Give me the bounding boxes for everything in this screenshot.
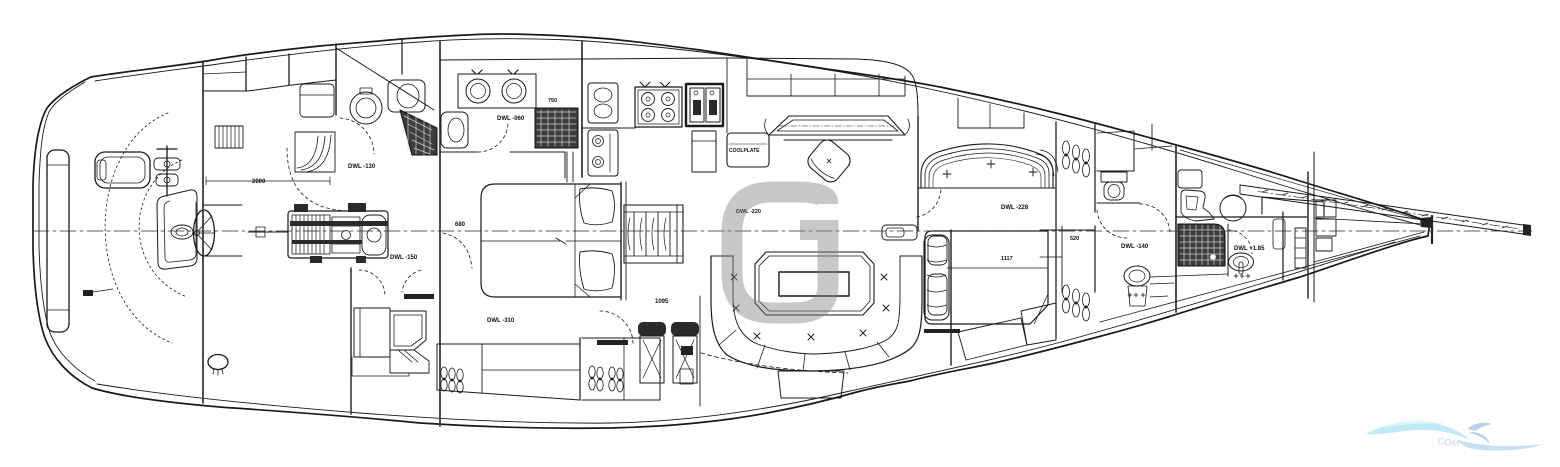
svg-text:520: 520 (1070, 236, 1079, 242)
svg-text:DWL -150: DWL -150 (390, 255, 418, 261)
svg-text:DWL -130: DWL -130 (348, 164, 376, 170)
svg-text:DWL +1.85: DWL +1.85 (1234, 246, 1265, 252)
svg-text:DWL -140: DWL -140 (1121, 244, 1149, 250)
svg-text:DWL -228: DWL -228 (1001, 205, 1029, 211)
svg-text:680: 680 (455, 222, 466, 228)
svg-text:COOLPLATE: COOLPLATE (729, 148, 760, 154)
svg-text:DWL -060: DWL -060 (497, 116, 525, 122)
svg-text:1117: 1117 (1001, 256, 1013, 262)
svg-text:DWL -310: DWL -310 (487, 318, 515, 324)
svg-text:1095: 1095 (655, 299, 669, 305)
svg-text:750: 750 (548, 98, 557, 104)
svg-text:2000: 2000 (252, 179, 266, 185)
